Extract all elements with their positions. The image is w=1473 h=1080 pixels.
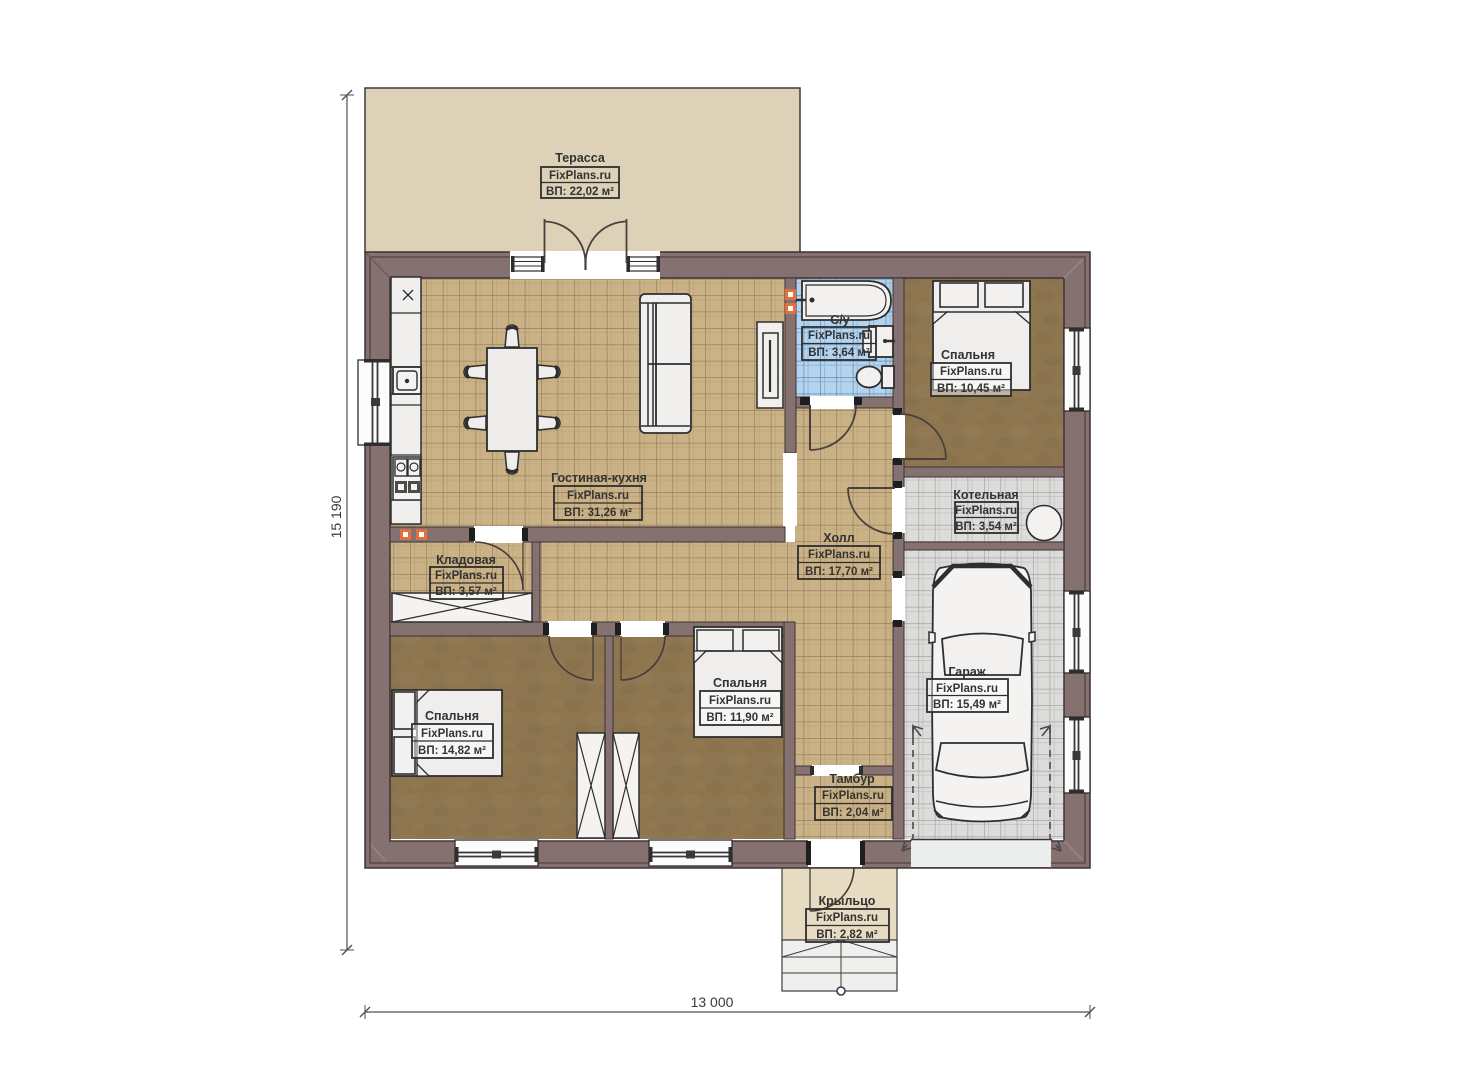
svg-text:ВП: 10,45 м²: ВП: 10,45 м² xyxy=(937,383,1005,395)
svg-text:FixPlans.ru: FixPlans.ru xyxy=(808,549,870,561)
svg-text:Спальня: Спальня xyxy=(425,709,479,723)
svg-text:Гараж: Гараж xyxy=(948,665,985,679)
svg-text:ВП: 14,82 м²: ВП: 14,82 м² xyxy=(418,745,486,757)
svg-text:ВП: 3,54 м²: ВП: 3,54 м² xyxy=(955,521,1017,533)
svg-text:Кладовая: Кладовая xyxy=(436,553,496,567)
svg-text:FixPlans.ru: FixPlans.ru xyxy=(549,170,611,182)
svg-text:Котельная: Котельная xyxy=(953,488,1018,502)
svg-text:Холл: Холл xyxy=(823,531,854,545)
svg-text:Спальня: Спальня xyxy=(713,676,767,690)
svg-text:ВП: 17,70 м²: ВП: 17,70 м² xyxy=(805,566,873,578)
svg-text:FixPlans.ru: FixPlans.ru xyxy=(567,490,629,502)
svg-text:ВП: 2,82 м²: ВП: 2,82 м² xyxy=(816,929,878,941)
svg-text:FixPlans.ru: FixPlans.ru xyxy=(940,366,1002,378)
svg-text:FixPlans.ru: FixPlans.ru xyxy=(709,695,771,707)
svg-text:FixPlans.ru: FixPlans.ru xyxy=(955,505,1017,517)
svg-text:FixPlans.ru: FixPlans.ru xyxy=(816,912,878,924)
svg-text:ВП: 15,49 м²: ВП: 15,49 м² xyxy=(933,699,1001,711)
svg-text:FixPlans.ru: FixPlans.ru xyxy=(435,570,497,582)
svg-text:Крыльцо: Крыльцо xyxy=(819,894,876,908)
svg-text:Терасса: Терасса xyxy=(555,151,606,165)
svg-text:ВП: 2,04 м²: ВП: 2,04 м² xyxy=(822,807,884,819)
svg-text:Спальня: Спальня xyxy=(941,348,995,362)
svg-text:FixPlans.ru: FixPlans.ru xyxy=(936,683,998,695)
svg-text:FixPlans.ru: FixPlans.ru xyxy=(808,330,870,342)
svg-text:ВП: 3,57 м²: ВП: 3,57 м² xyxy=(435,586,497,598)
svg-text:ВП: 22,02 м²: ВП: 22,02 м² xyxy=(546,186,614,198)
svg-text:FixPlans.ru: FixPlans.ru xyxy=(822,790,884,802)
svg-text:С/у: С/у xyxy=(830,313,850,327)
svg-text:Тамбур: Тамбур xyxy=(829,772,875,786)
svg-text:ВП: 31,26 м²: ВП: 31,26 м² xyxy=(564,507,632,519)
svg-text:ВП: 3,64 м²: ВП: 3,64 м² xyxy=(808,347,870,359)
svg-text:15 190: 15 190 xyxy=(328,495,344,538)
svg-text:Гостиная-кухня: Гостиная-кухня xyxy=(551,471,647,485)
svg-text:13 000: 13 000 xyxy=(691,994,734,1010)
svg-text:FixPlans.ru: FixPlans.ru xyxy=(421,728,483,740)
svg-text:ВП: 11,90 м²: ВП: 11,90 м² xyxy=(706,712,773,724)
